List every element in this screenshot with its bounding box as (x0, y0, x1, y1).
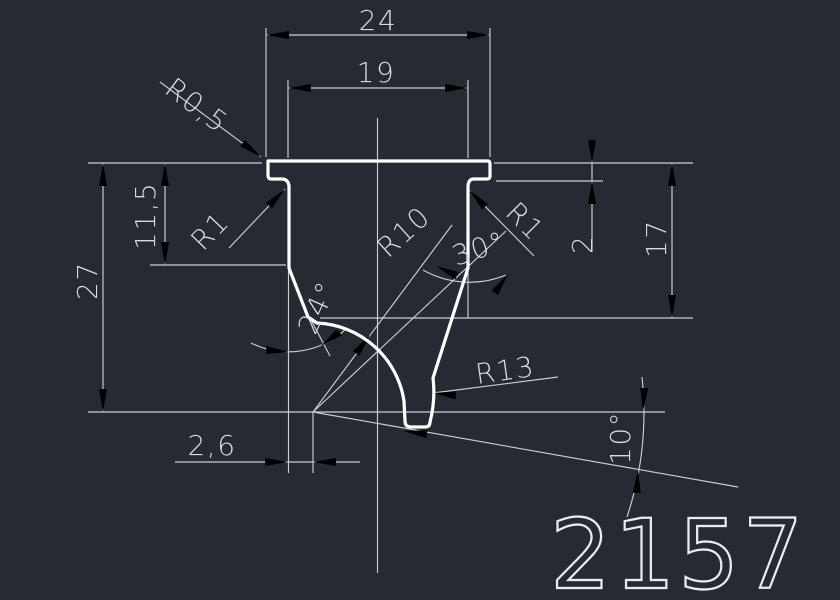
dim-label-r1-left: R1 (184, 205, 236, 257)
technical-drawing: 24 19 R0,5 R1 R1 11,5 27 2 17 30° 24° R1… (0, 0, 840, 600)
dim-label-r13: R13 (473, 350, 537, 391)
dimension-labels: 24 19 R0,5 R1 R1 11,5 27 2 17 30° 24° R1… (71, 4, 673, 465)
arrowhead (161, 163, 169, 186)
part-number: 2157 (550, 499, 806, 600)
arrowhead (288, 84, 311, 92)
arrowhead (266, 186, 288, 208)
dim-label-2: 2 (566, 235, 599, 254)
dim-label-24deg: 24° (291, 276, 343, 339)
profile-outline (268, 161, 490, 427)
dim-label-30deg: 30° (448, 225, 510, 273)
arrowhead (588, 140, 596, 163)
arrowhead (588, 181, 596, 204)
dim-label-11-5: 11,5 (129, 182, 162, 250)
dim-label-10deg: 10° (604, 411, 637, 465)
arrowhead (99, 163, 107, 186)
arrowhead (240, 140, 263, 160)
arrowhead (492, 272, 512, 295)
arrowhead (266, 346, 290, 356)
arrowhead (161, 242, 169, 265)
cad-drawing-canvas: 24 19 R0,5 R1 R1 11,5 27 2 17 30° 24° R1… (0, 0, 840, 600)
dim-label-17: 17 (640, 219, 673, 258)
ray-10deg (313, 412, 738, 487)
dim-label-27: 27 (71, 261, 104, 300)
arrowhead (265, 458, 288, 466)
arrowhead (99, 389, 107, 412)
arrowhead (467, 31, 490, 39)
dim-label-r1-right: R1 (499, 196, 551, 248)
arrowhead (639, 388, 648, 411)
dim-label-19: 19 (357, 56, 396, 89)
arrowhead (633, 470, 642, 493)
dim-label-24: 24 (359, 4, 398, 37)
dim-label-r10: R10 (371, 200, 437, 264)
arrowhead (445, 84, 468, 92)
arrowhead (668, 295, 676, 318)
arrowhead (668, 163, 676, 186)
arrowhead (313, 458, 336, 466)
arrowhead (266, 31, 289, 39)
dim-label-2-6: 2,6 (187, 429, 236, 462)
